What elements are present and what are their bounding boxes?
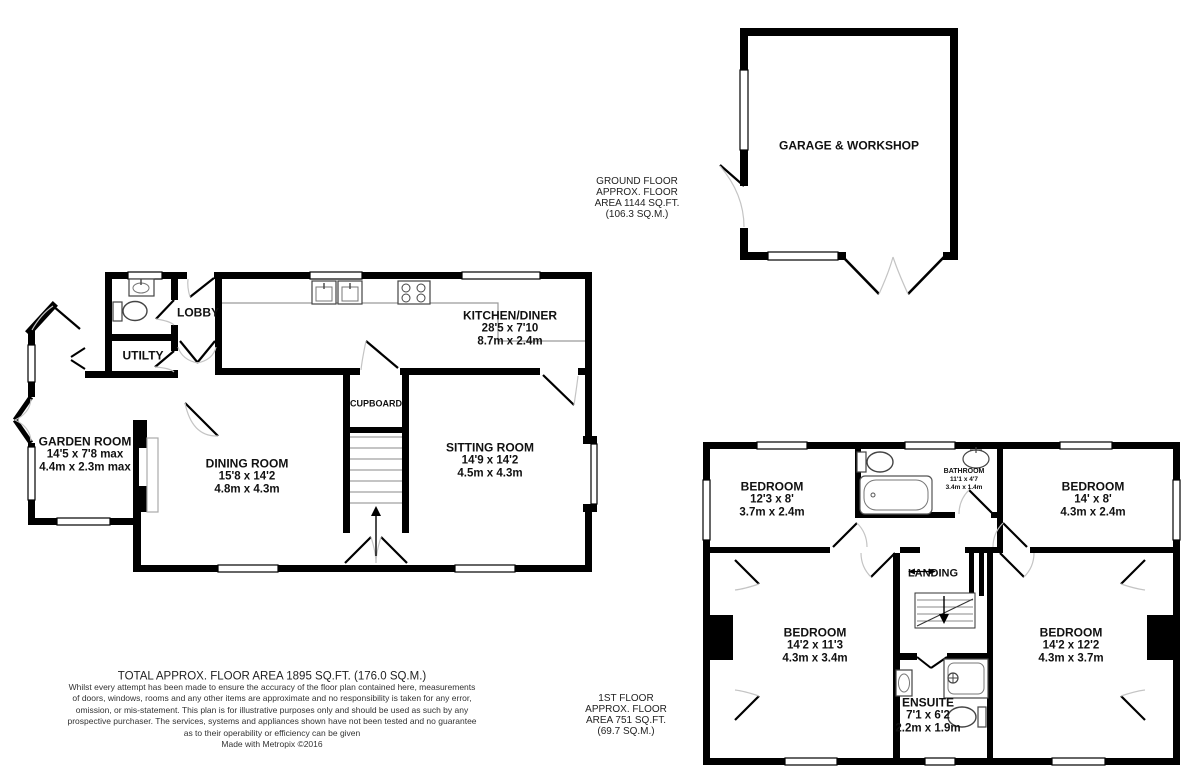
room-label-sitting: SITTING ROOM 14'9 x 14'2 4.5m x 4.3m [446,442,534,481]
room-label-cupboard: CUPBOARD [350,398,402,411]
disclaimer-text: Whilst every attempt has been made to en… [67,682,476,750]
ground-floor-note: GROUND FLOOR APPROX. FLOOR AREA 1144 SQ.… [595,176,680,220]
room-label-bedroom-3: BEDROOM 14'2 x 11'3 4.3m x 3.4m [782,627,847,666]
ground-floor-stairs [350,437,402,556]
room-label-ensuite: ENSUITE 7'1 x 6'2 2.2m x 1.9m [895,697,960,736]
first-floor-note: 1ST FLOOR APPROX. FLOOR AREA 751 SQ.FT. … [585,693,667,737]
wc-fixtures [113,279,154,321]
first-floor-stairs [915,593,975,628]
garage-walls [720,28,958,294]
room-label-landing: LANDING [908,568,958,581]
room-label-bathroom: BATHROOM 11'1 x 4'7 3.4m x 1.4m [944,468,985,492]
garage-name: GARAGE & WORKSHOP [779,140,919,153]
metropix-credit: Made with Metropix ©2016 [67,739,476,750]
double-arrow-icon [908,568,936,576]
room-label-utility: UTILTY [122,350,163,363]
room-label-bedroom-4: BEDROOM 14'2 x 12'2 4.3m x 3.7m [1038,627,1103,666]
room-label-lobby: LOBBY [177,307,219,320]
floorplan-drawing [0,0,1200,773]
room-label-bedroom-2: BEDROOM 14' x 8' 4.3m x 2.4m [1060,481,1125,520]
floorplan-page: GARAGE & WORKSHOP GROUND FLOOR APPROX. F… [0,0,1200,773]
room-label-kitchen: KITCHEN/DINER 28'5 x 7'10 8.7m x 2.4m [463,310,557,349]
room-label-dining: DINING ROOM 15'8 x 14'2 4.8m x 4.3m [206,458,289,497]
room-label-garden: GARDEN ROOM 14'5 x 7'8 max 4.4m x 2.3m m… [39,436,132,475]
room-label-garage: GARAGE & WORKSHOP [779,140,919,153]
room-label-bedroom-1: BEDROOM 12'3 x 8' 3.7m x 2.4m [739,481,804,520]
